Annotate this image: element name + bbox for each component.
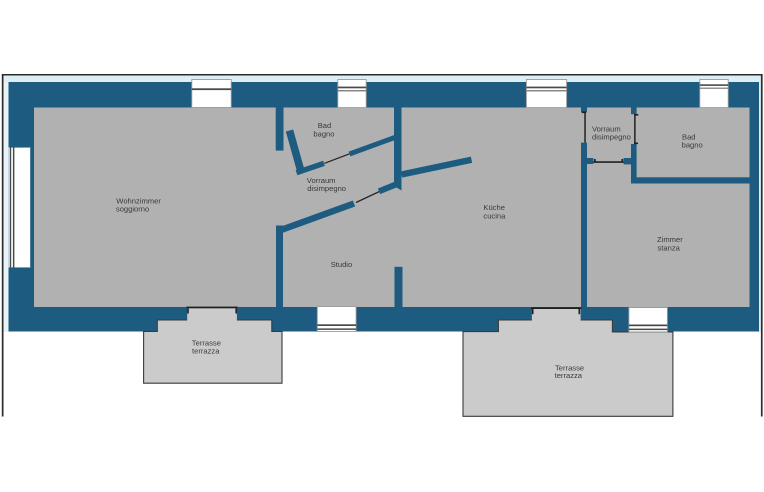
svg-text:disimpegno: disimpegno: [592, 133, 631, 142]
svg-text:stanza: stanza: [658, 244, 681, 253]
svg-text:bagno: bagno: [313, 130, 334, 139]
svg-text:terrazza: terrazza: [555, 371, 583, 380]
svg-text:cucina: cucina: [483, 211, 506, 220]
svg-text:terrazza: terrazza: [192, 346, 220, 355]
svg-text:disimpegno: disimpegno: [307, 184, 346, 193]
svg-text:bagno: bagno: [682, 141, 703, 150]
svg-text:Studio: Studio: [331, 260, 353, 269]
svg-text:soggiorno: soggiorno: [116, 205, 149, 214]
